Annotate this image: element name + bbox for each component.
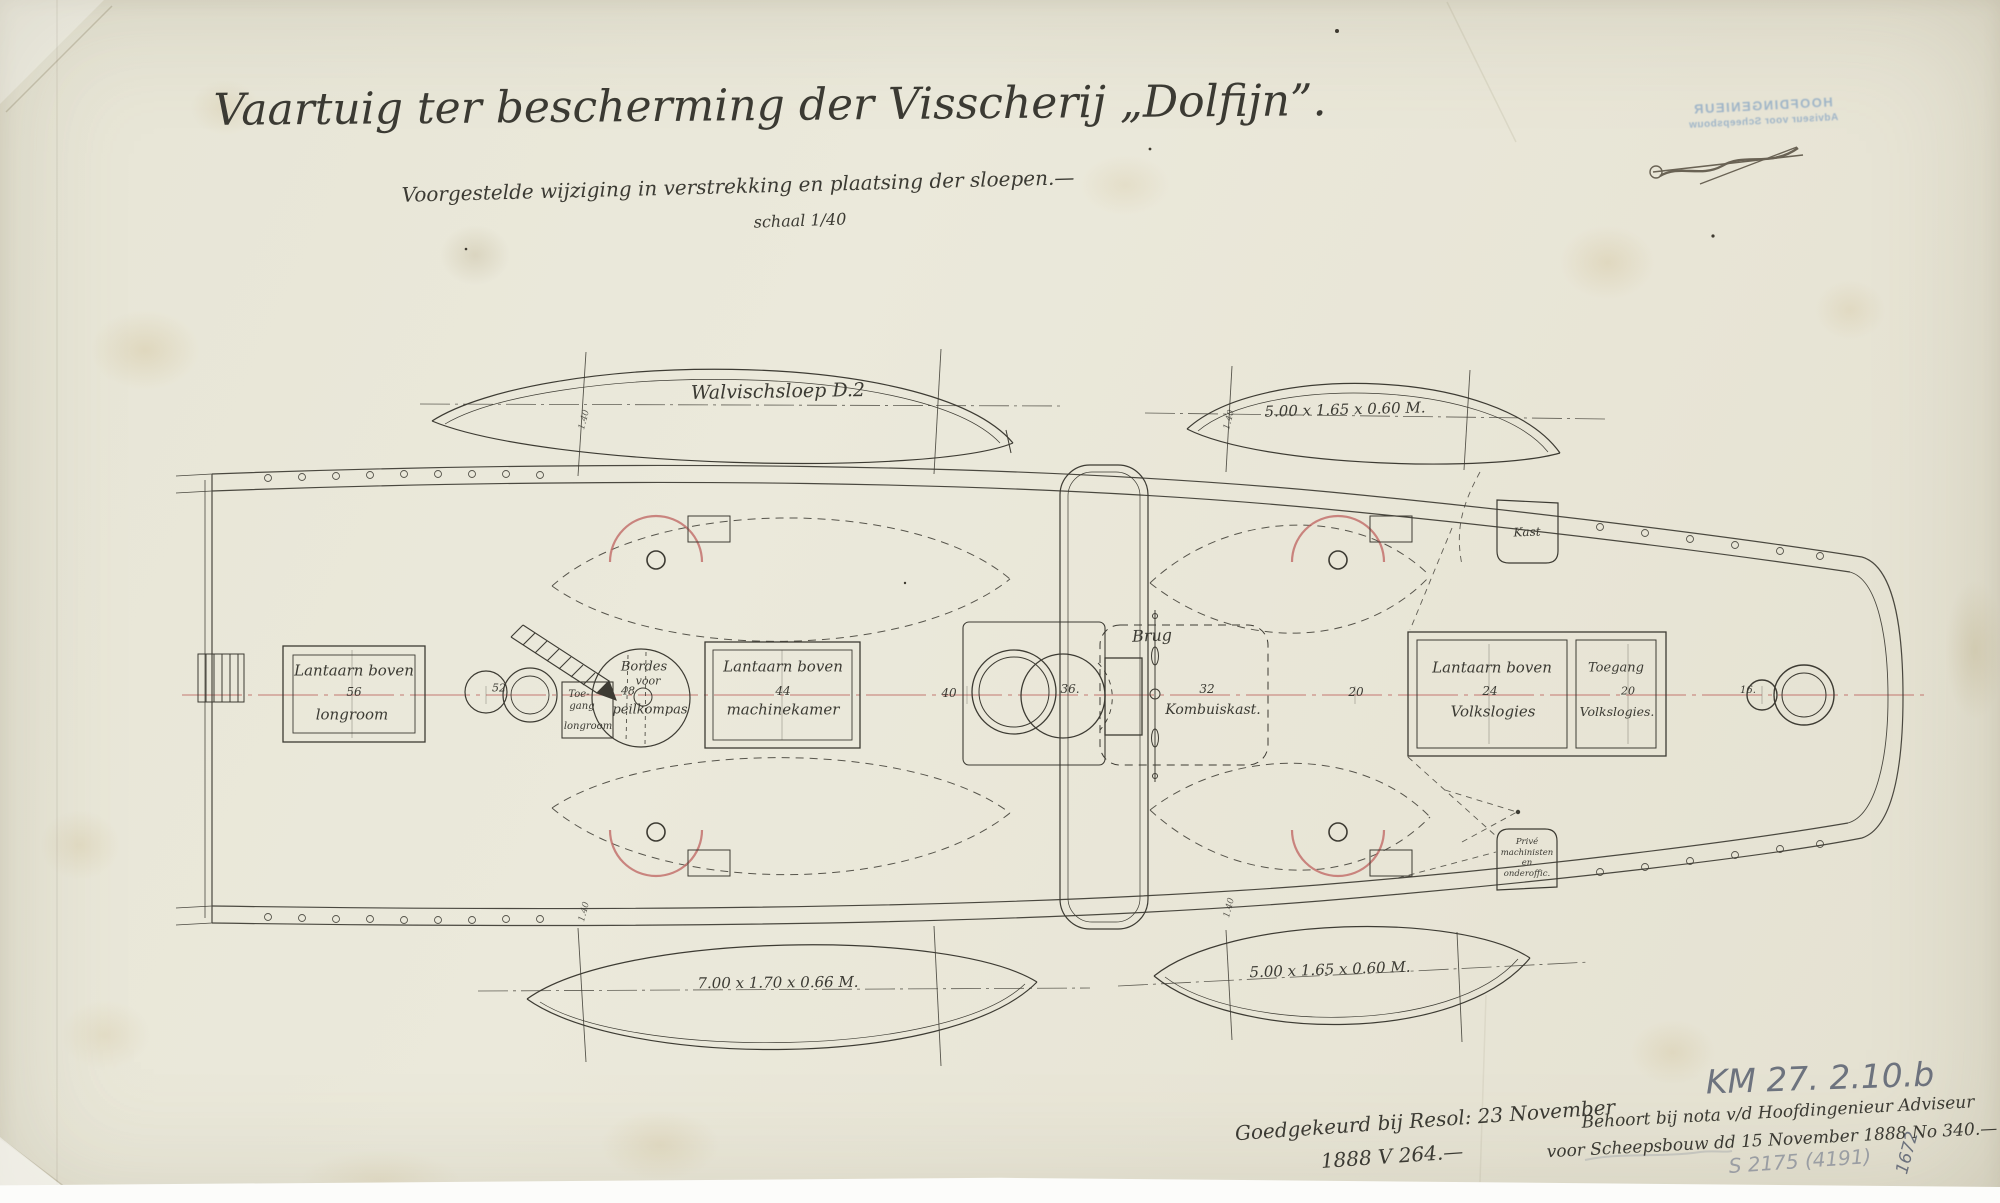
boat-bottom-left-outline	[527, 945, 1037, 1050]
boat-top-right-dim: 5.00 x 1.65 x 0.60 M.	[1264, 400, 1425, 419]
scale-note: schaal 1/40	[753, 211, 846, 230]
prive-label-line4: onderoffic.	[1504, 870, 1550, 879]
bridge-deck	[1060, 465, 1148, 929]
longroom-label-line2: longroom	[316, 708, 389, 723]
volkslogies-label-line1: Lantaarn boven	[1432, 661, 1552, 676]
frame-number-16: 16.	[1740, 686, 1756, 696]
bordes-label-line3: peilkompas	[612, 704, 687, 717]
bordes-frame-number: 48	[621, 686, 635, 697]
mirrored-signature	[1650, 147, 1803, 184]
paper-sheet: Vaartuig ter bescherming der Visscherij …	[0, 0, 2000, 1203]
prive-label-line1: Privé	[1516, 838, 1538, 847]
toegang-volkslogies-number: 20	[1621, 686, 1635, 697]
frame-number-40: 40	[941, 687, 956, 699]
dashed-lines-vertex	[1516, 810, 1520, 814]
frame-number-20-mid: 20	[1348, 686, 1363, 698]
longroom-frame-number: 56	[346, 686, 361, 698]
stowed-boat-dashed-outlines	[552, 518, 1430, 875]
prive-label-line2: machinisten	[1501, 849, 1554, 858]
kombuis-frame-number: 32	[1199, 683, 1214, 695]
brug-label: Brug	[1132, 627, 1172, 644]
toegang-longroom-line1: Toe-	[568, 690, 589, 700]
machinekamer-label-line1: Lantaarn boven	[723, 660, 843, 675]
boat-bottom-left-dim: 7.00 x 1.70 x 0.66 M.	[697, 975, 858, 991]
archive-number-km: KM 27. 2.10.b	[1705, 1058, 1935, 1099]
funnel	[972, 650, 1112, 738]
davit-hardware	[647, 516, 1412, 876]
toegang-longroom-line3: longroom	[564, 722, 612, 732]
bordes-label-line2: voor	[636, 676, 661, 687]
davit-fall-lines	[578, 349, 1470, 1066]
drawing-title: Vaartuig ter bescherming der Visscherij …	[213, 79, 1326, 133]
kombuiskast-label: Kombuiskast.	[1165, 703, 1261, 717]
volkslogies-frame-number: 24	[1482, 685, 1497, 697]
boat-axis-lines	[420, 404, 1605, 991]
machinekamer-frame-number: 44	[775, 685, 790, 697]
frame-number-52: 52	[492, 683, 506, 694]
longroom-label-line1: Lantaarn boven	[294, 664, 414, 679]
scupper-holes	[265, 471, 1824, 924]
toegang-volkslogies-line1: Toegang	[1588, 662, 1644, 675]
companion-ladder	[511, 625, 616, 700]
boat-top-right-outline	[1187, 383, 1560, 464]
boat-top-left-label: Walvischsloep D.2	[691, 381, 865, 403]
prive-label-line3: en	[1522, 859, 1533, 868]
boiler-casing	[963, 622, 1105, 765]
volkslogies-label-line2: Volkslogies	[1451, 705, 1536, 720]
machinekamer-label-line2: machinekamer	[727, 703, 840, 718]
toegang-longroom-line2: gang	[569, 702, 594, 712]
bordes-label-line1: Bordes	[621, 661, 667, 674]
funnel-frame-number: 36.	[1060, 683, 1079, 695]
toegang-volkslogies-line2: Volkslogies.	[1580, 706, 1655, 719]
kast-label: Kast	[1513, 526, 1541, 539]
scanned-ship-plan: Vaartuig ter bescherming der Visscherij …	[0, 0, 2000, 1203]
